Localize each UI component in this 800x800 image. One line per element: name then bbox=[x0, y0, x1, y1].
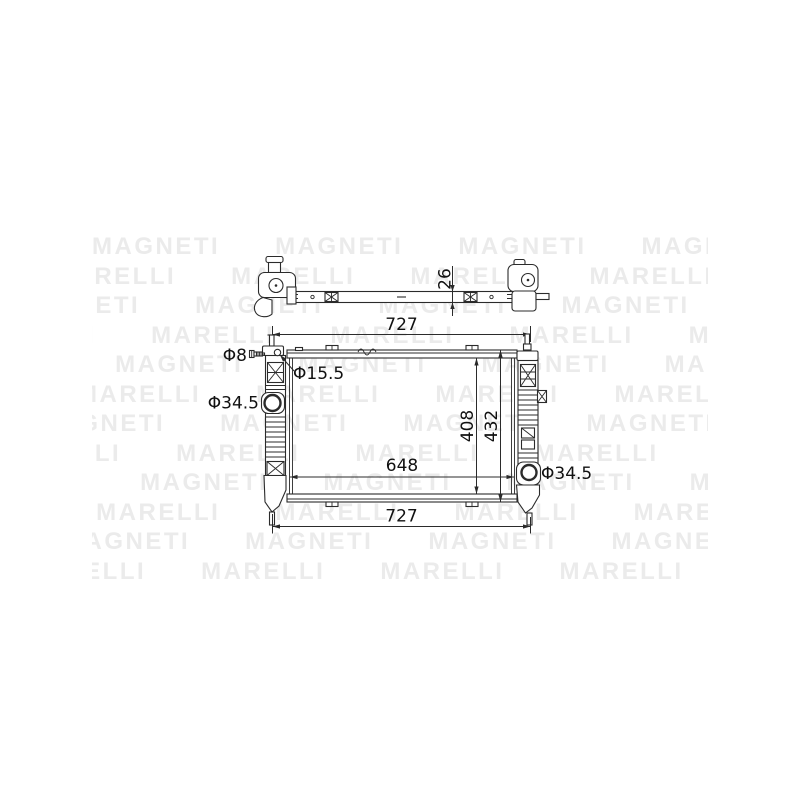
dimension-432: 432 bbox=[482, 350, 503, 502]
dimension-727-bottom: 727 bbox=[273, 507, 531, 534]
dimension-727-top: 727 bbox=[273, 315, 531, 342]
right-tank-hatch bbox=[521, 365, 536, 387]
top-view-hatch-right bbox=[464, 293, 477, 302]
dimension-408: 408 bbox=[458, 358, 479, 494]
dimension-label-432: 432 bbox=[482, 410, 502, 442]
right-bottom-pin bbox=[527, 513, 532, 525]
top-view-hatch-left bbox=[325, 293, 338, 302]
bottom-header bbox=[287, 494, 517, 507]
label-filler-hole-diameter: Φ15.5 bbox=[293, 364, 344, 384]
label-bolt-diameter: Φ8 bbox=[223, 346, 247, 366]
outlet-pipe bbox=[522, 465, 537, 480]
top-view-right-bracket bbox=[508, 260, 549, 312]
top-view-left-bracket bbox=[254, 257, 296, 317]
label-inlet-diameter: Φ34.5 bbox=[208, 394, 259, 414]
left-tank bbox=[262, 335, 287, 525]
label-outlet-diameter: Φ34.5 bbox=[541, 464, 592, 484]
dimension-648: 648 bbox=[290, 456, 514, 479]
left-top-pin bbox=[270, 335, 275, 346]
top-view-right-pin bbox=[536, 294, 549, 300]
right-mid-boxes bbox=[522, 428, 535, 449]
bolt-icon bbox=[250, 351, 265, 358]
dimension-label-727-top: 727 bbox=[385, 315, 417, 335]
right-side-tab bbox=[538, 391, 547, 403]
front-view: 408 432 648 bbox=[208, 334, 592, 534]
right-tank bbox=[517, 334, 547, 525]
dimension-label-648: 648 bbox=[386, 456, 418, 476]
inlet-pipe bbox=[265, 395, 281, 411]
left-lower-bracket bbox=[267, 462, 284, 476]
left-foot bbox=[264, 476, 286, 513]
dimension-label-26: 26 bbox=[436, 268, 456, 290]
top-view: 26 bbox=[254, 257, 549, 317]
filler-hole bbox=[274, 349, 280, 355]
top-header bbox=[287, 346, 517, 359]
left-tank-hatch bbox=[268, 363, 284, 383]
dimension-label-727-bottom: 727 bbox=[385, 507, 417, 527]
radiator-technical-drawing: 26 727 bbox=[0, 0, 800, 800]
dimension-label-408: 408 bbox=[458, 410, 478, 442]
diagram-canvas: MAGNETI MAGNETI MAGNETI MAGNETI MAGNETI … bbox=[0, 0, 800, 800]
right-foot bbox=[517, 485, 540, 513]
